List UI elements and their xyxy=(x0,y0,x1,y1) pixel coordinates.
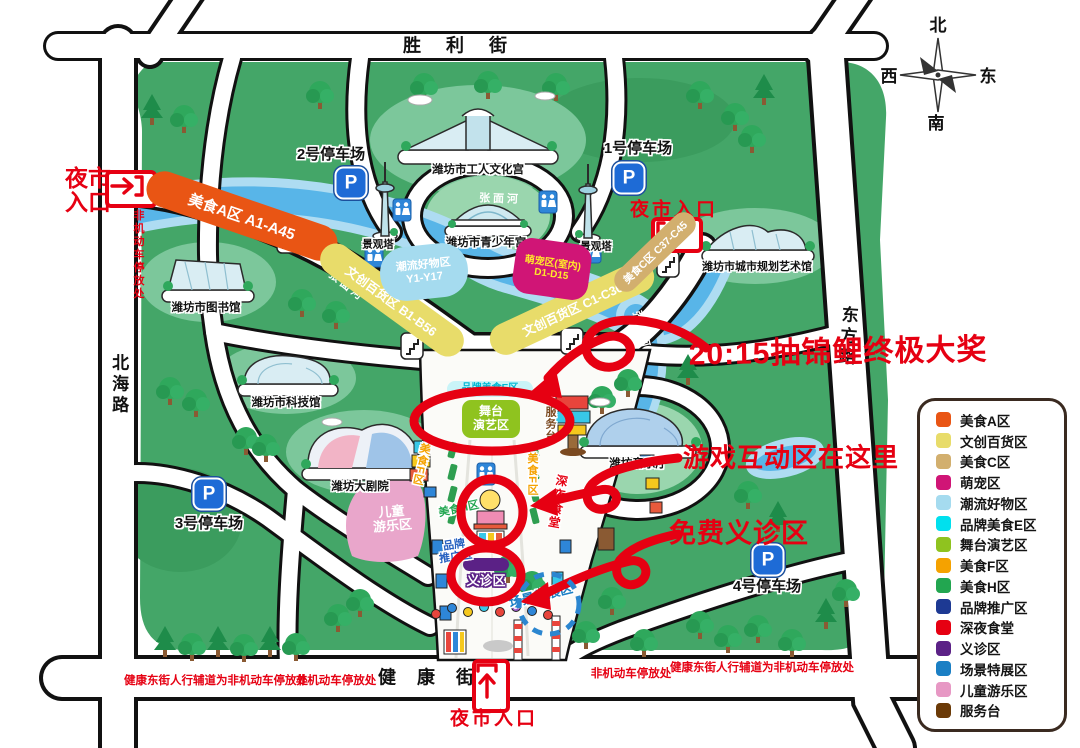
annotation-free-clinic: 免费义诊区 xyxy=(669,512,809,551)
annotation-game-zone: 游戏互动区在这里 xyxy=(683,438,899,475)
annotation-grand-prize: 20:15抽锦鲤终极大奖 xyxy=(688,324,987,373)
night-market-park-map: 胜 利 街 健 康 街 北海路 东方路 非机动车停放处 健康东街人行辅道为非机动… xyxy=(0,0,1080,748)
